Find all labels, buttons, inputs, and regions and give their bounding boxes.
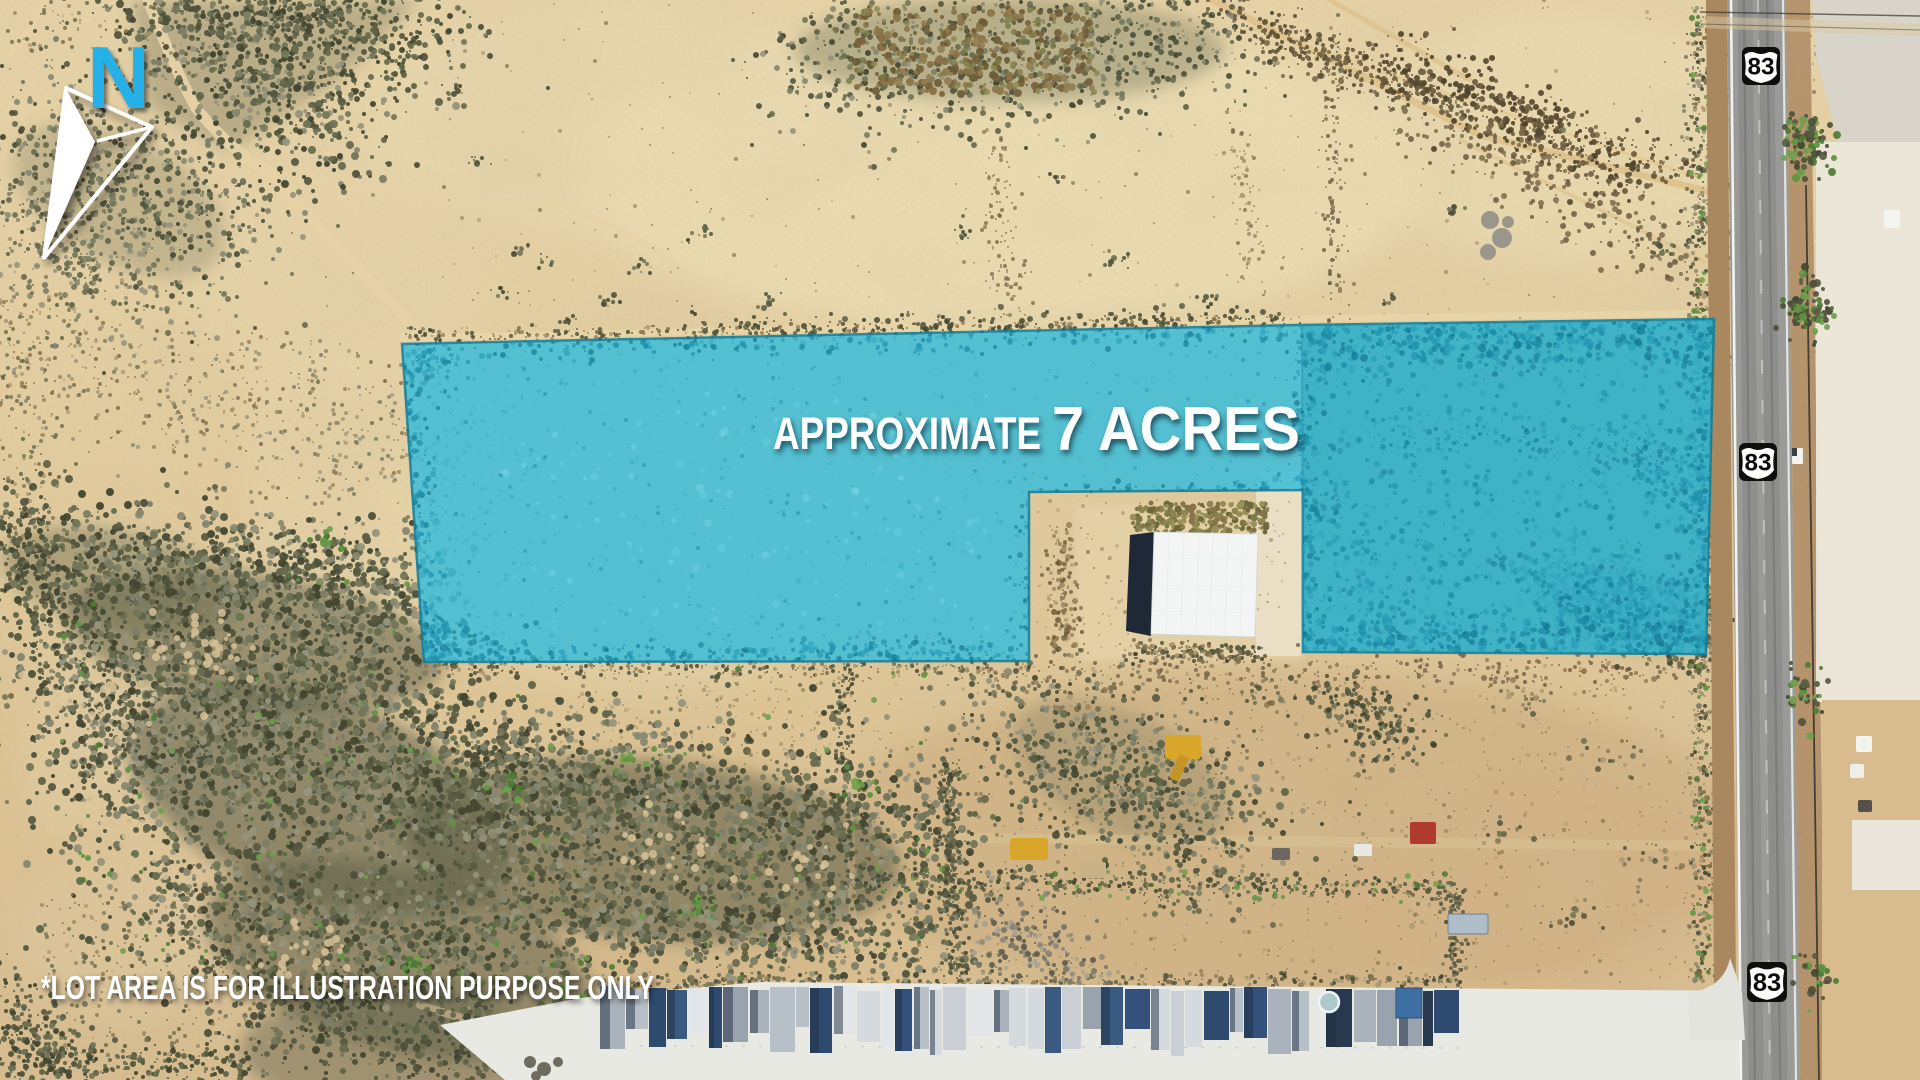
svg-text:N: N: [87, 28, 150, 127]
svg-text:83: 83: [1748, 54, 1775, 81]
svg-text:APPROXIMATE: APPROXIMATE: [773, 408, 1041, 459]
svg-text:83: 83: [1745, 450, 1772, 477]
svg-text:*LOT AREA IS FOR ILLUSTRATION: *LOT AREA IS FOR ILLUSTRATION PURPOSE ON…: [41, 969, 654, 1006]
svg-text:83: 83: [1753, 969, 1781, 997]
svg-text:7 ACRES: 7 ACRES: [1052, 395, 1300, 464]
